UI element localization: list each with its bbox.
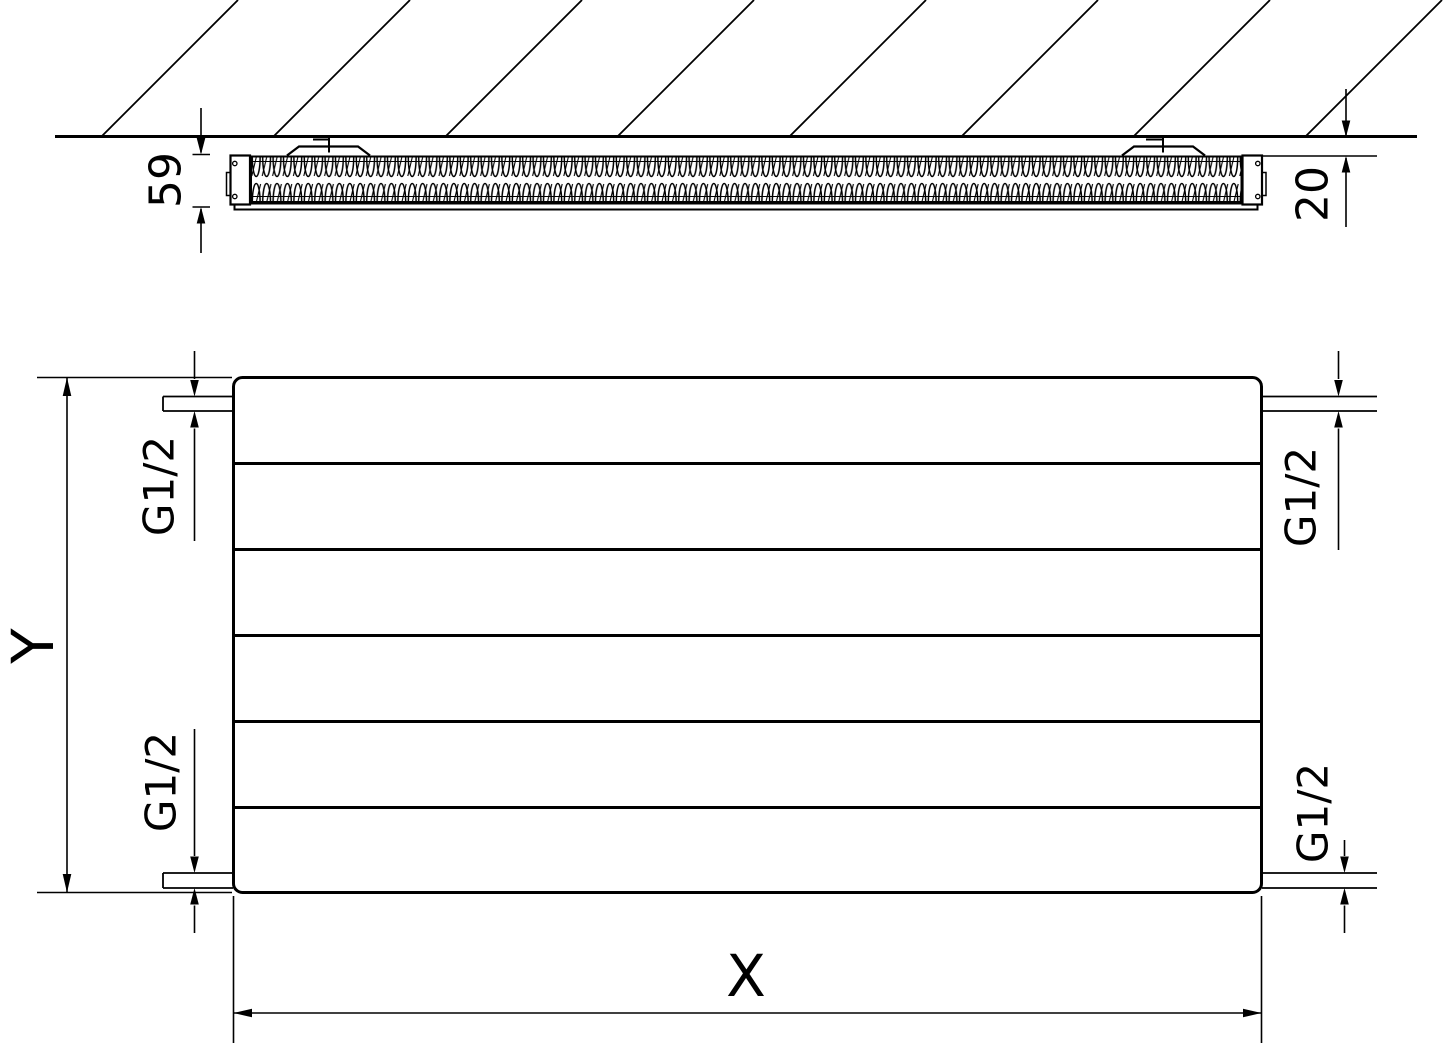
dimension-depth: 59: [141, 108, 211, 253]
radiator-front-face: [234, 378, 1262, 893]
width-axis-label: X: [726, 942, 766, 1010]
connection-stub-bottom-left: [163, 873, 233, 888]
drawing-svg: 59 20: [0, 0, 1443, 1055]
connection-stub-top-right: [1262, 397, 1377, 412]
height-axis-label: Y: [0, 628, 67, 665]
dimension-connection-bottom-left: G1/2: [137, 729, 199, 933]
front-panel-edge: [235, 204, 1258, 210]
dimension-connection-top-right: G1/2: [1277, 351, 1343, 550]
dimension-width: X: [234, 896, 1262, 1043]
dimension-height: Y: [0, 378, 232, 893]
connection-label-top-left: G1/2: [135, 436, 184, 536]
connection-stub-bottom-right: [1262, 873, 1377, 888]
dimension-wall-distance: 20: [1263, 89, 1377, 227]
mounting-bracket-right: [1122, 138, 1205, 156]
wall-distance-label: 20: [1288, 166, 1339, 222]
connection-label-bottom-right: G1/2: [1289, 763, 1338, 863]
connection-stub-top-left: [163, 397, 233, 412]
radiator-technical-drawing: 59 20: [0, 0, 1443, 1055]
convector-fins: [251, 157, 1242, 203]
end-cap-right: [1243, 156, 1267, 205]
depth-label: 59: [141, 152, 192, 208]
connection-label-top-right: G1/2: [1277, 447, 1326, 547]
connection-label-bottom-left: G1/2: [137, 732, 186, 832]
wall-hatching: [102, 0, 1442, 136]
end-cap-left: [227, 156, 251, 205]
mounting-bracket-left: [287, 138, 370, 156]
dimension-connection-bottom-right: G1/2: [1289, 763, 1349, 933]
dimension-connection-top-left: G1/2: [135, 351, 199, 541]
